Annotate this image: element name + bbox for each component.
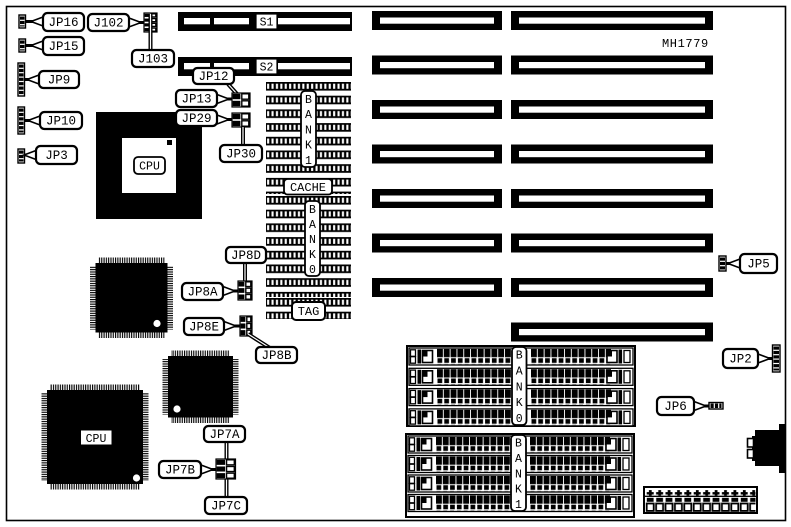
svg-text:JP30: JP30	[226, 148, 256, 162]
svg-text:N: N	[516, 381, 523, 394]
svg-text:A: A	[305, 109, 312, 122]
svg-text:A: A	[516, 365, 523, 378]
svg-text:JP8E: JP8E	[189, 321, 219, 335]
svg-text:JP5: JP5	[747, 258, 770, 272]
svg-text:JP7B: JP7B	[165, 464, 196, 478]
svg-text:JP12: JP12	[198, 70, 228, 84]
svg-text:MH1779: MH1779	[662, 37, 709, 51]
svg-text:JP8A: JP8A	[187, 286, 218, 300]
svg-text:1: 1	[305, 155, 312, 168]
svg-text:K: K	[516, 397, 523, 410]
svg-text:B: B	[515, 438, 522, 451]
svg-text:S1: S1	[260, 17, 274, 30]
svg-text:CPU: CPU	[139, 161, 160, 174]
svg-text:JP6: JP6	[664, 400, 687, 414]
svg-text:0: 0	[516, 413, 523, 426]
svg-text:B: B	[516, 350, 523, 363]
svg-text:A: A	[515, 453, 522, 466]
svg-text:JP2: JP2	[729, 353, 752, 367]
svg-text:CACHE: CACHE	[290, 181, 326, 195]
svg-text:JP8B: JP8B	[261, 349, 292, 363]
svg-text:J102: J102	[93, 17, 123, 31]
svg-text:K: K	[309, 249, 316, 262]
svg-text:JP8D: JP8D	[231, 249, 261, 263]
svg-text:JP13: JP13	[181, 93, 211, 107]
svg-text:N: N	[305, 124, 312, 137]
svg-text:K: K	[305, 140, 312, 153]
svg-text:CPU: CPU	[86, 433, 107, 446]
svg-text:J103: J103	[138, 53, 168, 67]
svg-text:JP9: JP9	[48, 74, 71, 88]
svg-text:JP15: JP15	[48, 40, 78, 54]
svg-text:JP10: JP10	[46, 115, 76, 129]
svg-text:JP16: JP16	[48, 16, 78, 30]
svg-text:S2: S2	[260, 62, 274, 75]
svg-text:B: B	[305, 94, 312, 107]
svg-text:1: 1	[515, 499, 522, 512]
svg-text:TAG: TAG	[298, 305, 320, 319]
svg-text:JP7C: JP7C	[211, 500, 241, 514]
svg-text:N: N	[515, 468, 522, 481]
svg-text:K: K	[515, 484, 522, 497]
svg-text:JP3: JP3	[45, 149, 68, 163]
svg-text:JP7A: JP7A	[209, 428, 240, 442]
svg-text:0: 0	[309, 264, 316, 277]
svg-text:B: B	[309, 204, 316, 217]
svg-text:JP29: JP29	[181, 112, 211, 126]
svg-text:A: A	[309, 219, 316, 232]
svg-text:N: N	[309, 234, 316, 247]
